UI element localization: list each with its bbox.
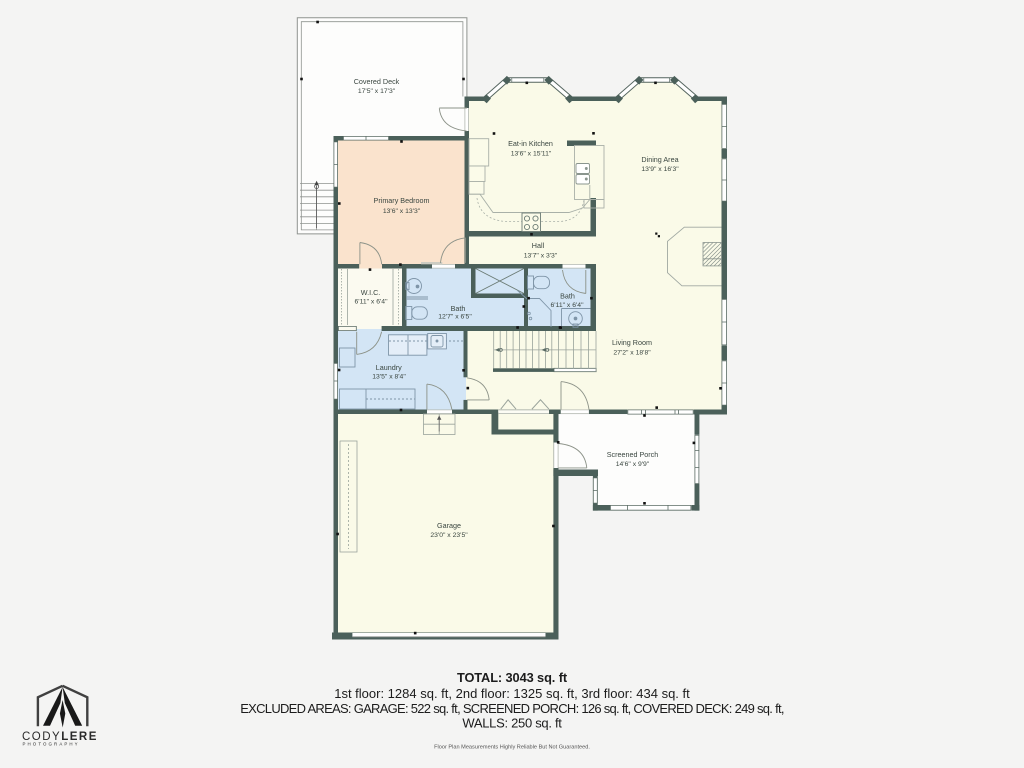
svg-text:Hall: Hall <box>532 241 545 250</box>
svg-text:23'0" x 23'5": 23'0" x 23'5" <box>430 532 468 539</box>
svg-text:W.I.C.: W.I.C. <box>361 288 381 297</box>
svg-text:1st floor: 1284 sq. ft, 2nd fl: 1st floor: 1284 sq. ft, 2nd floor: 1325 … <box>334 686 690 701</box>
svg-text:13'5" x 8'4": 13'5" x 8'4" <box>372 374 406 381</box>
svg-text:6'11" x 6'4": 6'11" x 6'4" <box>355 299 389 306</box>
svg-text:Floor Plan Measurements Highly: Floor Plan Measurements Highly Reliable … <box>434 745 590 751</box>
svg-text:Garage: Garage <box>437 521 461 530</box>
svg-text:13'6" x 15'11": 13'6" x 15'11" <box>511 151 552 158</box>
svg-text:Screened Porch: Screened Porch <box>607 450 659 459</box>
svg-text:Laundry: Laundry <box>376 363 402 372</box>
svg-text:17'5" x 17'3": 17'5" x 17'3" <box>358 88 396 95</box>
svg-text:Living Room: Living Room <box>612 338 652 347</box>
svg-text:WALLS: 250 sq. ft: WALLS: 250 sq. ft <box>462 716 562 731</box>
svg-text:13'9" x 16'3": 13'9" x 16'3" <box>641 166 679 173</box>
svg-text:Bath: Bath <box>560 292 575 301</box>
svg-text:14'6" x 9'9": 14'6" x 9'9" <box>616 461 650 468</box>
svg-text:Covered Deck: Covered Deck <box>354 77 400 86</box>
svg-text:27'2" x 18'8": 27'2" x 18'8" <box>613 350 651 357</box>
svg-text:Bath: Bath <box>451 304 466 313</box>
svg-text:12'7" x 6'5": 12'7" x 6'5" <box>438 314 472 321</box>
svg-text:6'11" x 6'4": 6'11" x 6'4" <box>551 302 585 309</box>
svg-text:Dining Area: Dining Area <box>641 155 678 164</box>
svg-text:Primary Bedroom: Primary Bedroom <box>374 196 430 205</box>
svg-text:PHOTOGRAPHY: PHOTOGRAPHY <box>23 742 80 747</box>
svg-text:13'7" x 3'3": 13'7" x 3'3" <box>524 253 558 260</box>
svg-text:Eat-in Kitchen: Eat-in Kitchen <box>508 139 553 148</box>
svg-text:TOTAL: 3043 sq. ft: TOTAL: 3043 sq. ft <box>457 670 568 685</box>
svg-text:13'6" x 13'3": 13'6" x 13'3" <box>383 208 421 215</box>
svg-text:EXCLUDED AREAS: GARAGE: 522 sq: EXCLUDED AREAS: GARAGE: 522 sq. ft, SCRE… <box>240 701 784 716</box>
